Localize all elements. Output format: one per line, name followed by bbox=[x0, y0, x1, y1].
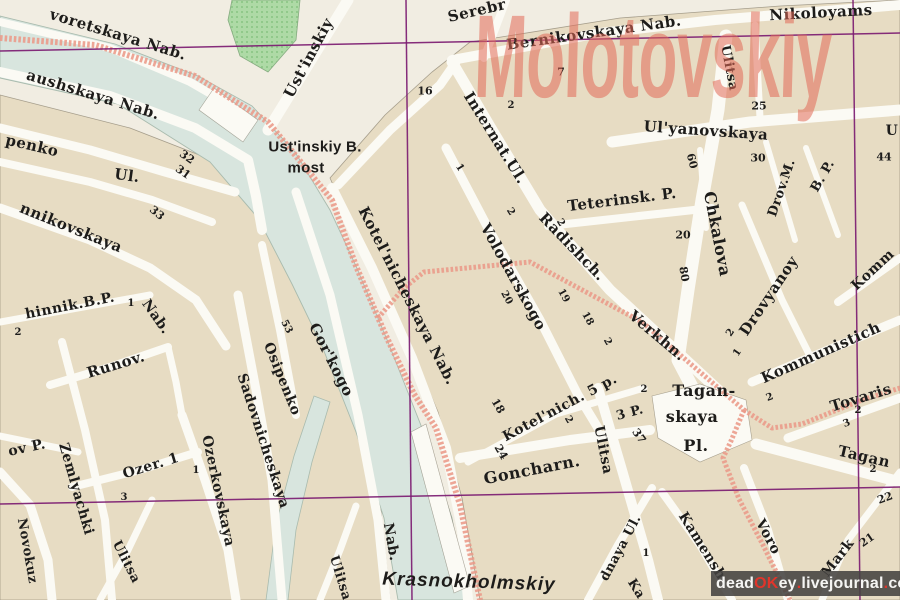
street-label: most bbox=[287, 161, 324, 176]
street-label: Runov. bbox=[85, 349, 146, 381]
house-number: 80 bbox=[677, 266, 690, 283]
house-number: 3 bbox=[121, 493, 128, 503]
street-label: Radishch. bbox=[536, 210, 608, 284]
street-label: Nikoloyams bbox=[769, 3, 873, 23]
house-number: 2 bbox=[504, 206, 516, 217]
house-number: 22 bbox=[876, 490, 894, 506]
street-label: ov P. bbox=[7, 437, 47, 459]
street-label: Gor'kogo bbox=[306, 321, 356, 399]
street-label: Ozerkovskaya bbox=[199, 434, 236, 548]
house-number: 33 bbox=[148, 204, 167, 222]
street-label: Kommunistich bbox=[759, 320, 883, 386]
street-label: Tagan- bbox=[672, 383, 736, 399]
street-label: Volodarskogo bbox=[477, 221, 548, 333]
house-number: 3 bbox=[842, 418, 852, 430]
badge-text-segment: dead bbox=[716, 576, 754, 592]
street-label: Serebr bbox=[446, 0, 507, 25]
map-labels-layer: voretskaya Nab.aushskaya Nab.penkoUl.323… bbox=[0, 0, 900, 600]
house-number: 19 bbox=[555, 287, 570, 304]
street-label: Verkhn. bbox=[626, 308, 688, 364]
street-label: Pl. bbox=[683, 438, 708, 454]
house-number: 1 bbox=[732, 347, 744, 358]
street-label: Ulitsa bbox=[110, 539, 142, 586]
street-label: aushskaya Nab. bbox=[25, 68, 162, 123]
house-number: 60 bbox=[685, 152, 699, 170]
street-label: Novokuz bbox=[15, 517, 39, 584]
street-label: Ozer. 1 bbox=[121, 451, 181, 481]
street-label: nnikovskaya bbox=[18, 201, 125, 256]
house-number: 18 bbox=[579, 310, 594, 327]
house-number: 2 bbox=[855, 406, 862, 416]
house-number: 1 bbox=[453, 162, 465, 173]
street-label: Krasnokholmskiy bbox=[382, 569, 556, 594]
street-label: dnaya Ul. bbox=[598, 513, 644, 583]
house-number: 16 bbox=[417, 86, 432, 97]
house-number: 1 bbox=[128, 299, 135, 309]
house-number: 30 bbox=[750, 153, 765, 164]
house-number: 25 bbox=[751, 101, 766, 112]
street-label: Drov.M. bbox=[766, 158, 798, 219]
street-label: Osipenko bbox=[261, 341, 303, 418]
street-label: Nab. bbox=[381, 522, 401, 562]
house-number: 24 bbox=[492, 443, 509, 462]
street-label: Ust'inskiy bbox=[282, 16, 337, 101]
street-label: Internat.Ul. bbox=[461, 89, 529, 186]
street-label: penko bbox=[4, 133, 60, 160]
house-number: 37 bbox=[630, 427, 648, 446]
street-label: Tagan bbox=[836, 444, 891, 471]
street-label: Ulitsa bbox=[327, 554, 353, 600]
badge-text-segment: com bbox=[888, 576, 900, 592]
street-label: Ka bbox=[625, 577, 647, 600]
house-number: 2 bbox=[562, 414, 574, 425]
street-label: Nab. bbox=[139, 297, 173, 337]
house-number: 44 bbox=[876, 152, 891, 163]
badge-text-segment: OK bbox=[754, 576, 778, 592]
house-number: 53 bbox=[278, 319, 293, 336]
street-label: Ul'yanovskaya bbox=[643, 119, 769, 143]
street-label: Ul. bbox=[113, 167, 140, 185]
house-number: 20 bbox=[675, 230, 690, 241]
house-number: 18 bbox=[489, 397, 506, 416]
livejournal-watermark-badge: deadOKey.livejournal.com bbox=[711, 571, 900, 596]
street-label: Ulitsa bbox=[718, 44, 740, 92]
house-number: 2 bbox=[601, 337, 613, 348]
house-number: 2 bbox=[508, 101, 515, 111]
street-label: Ulitsa bbox=[591, 424, 614, 475]
street-label: hinnik.B.P. bbox=[24, 290, 116, 321]
street-label: Chkalova bbox=[701, 190, 733, 278]
house-number: 21 bbox=[858, 531, 877, 549]
street-label: B. P. bbox=[809, 158, 838, 195]
street-label: skaya bbox=[666, 409, 719, 425]
map-canvas: voretskaya Nab.aushskaya Nab.penkoUl.323… bbox=[0, 0, 900, 600]
house-number: 2 bbox=[15, 328, 22, 338]
street-label: voretskaya Nab. bbox=[48, 7, 188, 63]
street-label: Teterinsk. P. bbox=[567, 186, 678, 214]
house-number: 7 bbox=[557, 67, 565, 78]
street-label: Voro bbox=[753, 517, 783, 557]
street-label: Bernikovskaya Nab. bbox=[506, 13, 683, 52]
badge-text-segment: ey bbox=[779, 576, 797, 592]
street-label: Drovyanoy bbox=[737, 254, 801, 339]
house-number: 2 bbox=[641, 385, 648, 395]
street-label: 3 P. bbox=[615, 403, 645, 423]
house-number: 1 bbox=[193, 466, 200, 476]
street-label: Ust'inskiy B. bbox=[268, 140, 361, 155]
street-label: Komm bbox=[849, 247, 897, 293]
street-label: U bbox=[886, 124, 899, 138]
badge-text-segment: livejournal bbox=[801, 576, 883, 592]
street-label: Zemlyachki bbox=[56, 441, 96, 536]
street-label: Kotel'nicheskaya Nab. bbox=[355, 205, 458, 388]
house-number: 2 bbox=[765, 392, 775, 404]
house-number: 1 bbox=[643, 549, 650, 559]
